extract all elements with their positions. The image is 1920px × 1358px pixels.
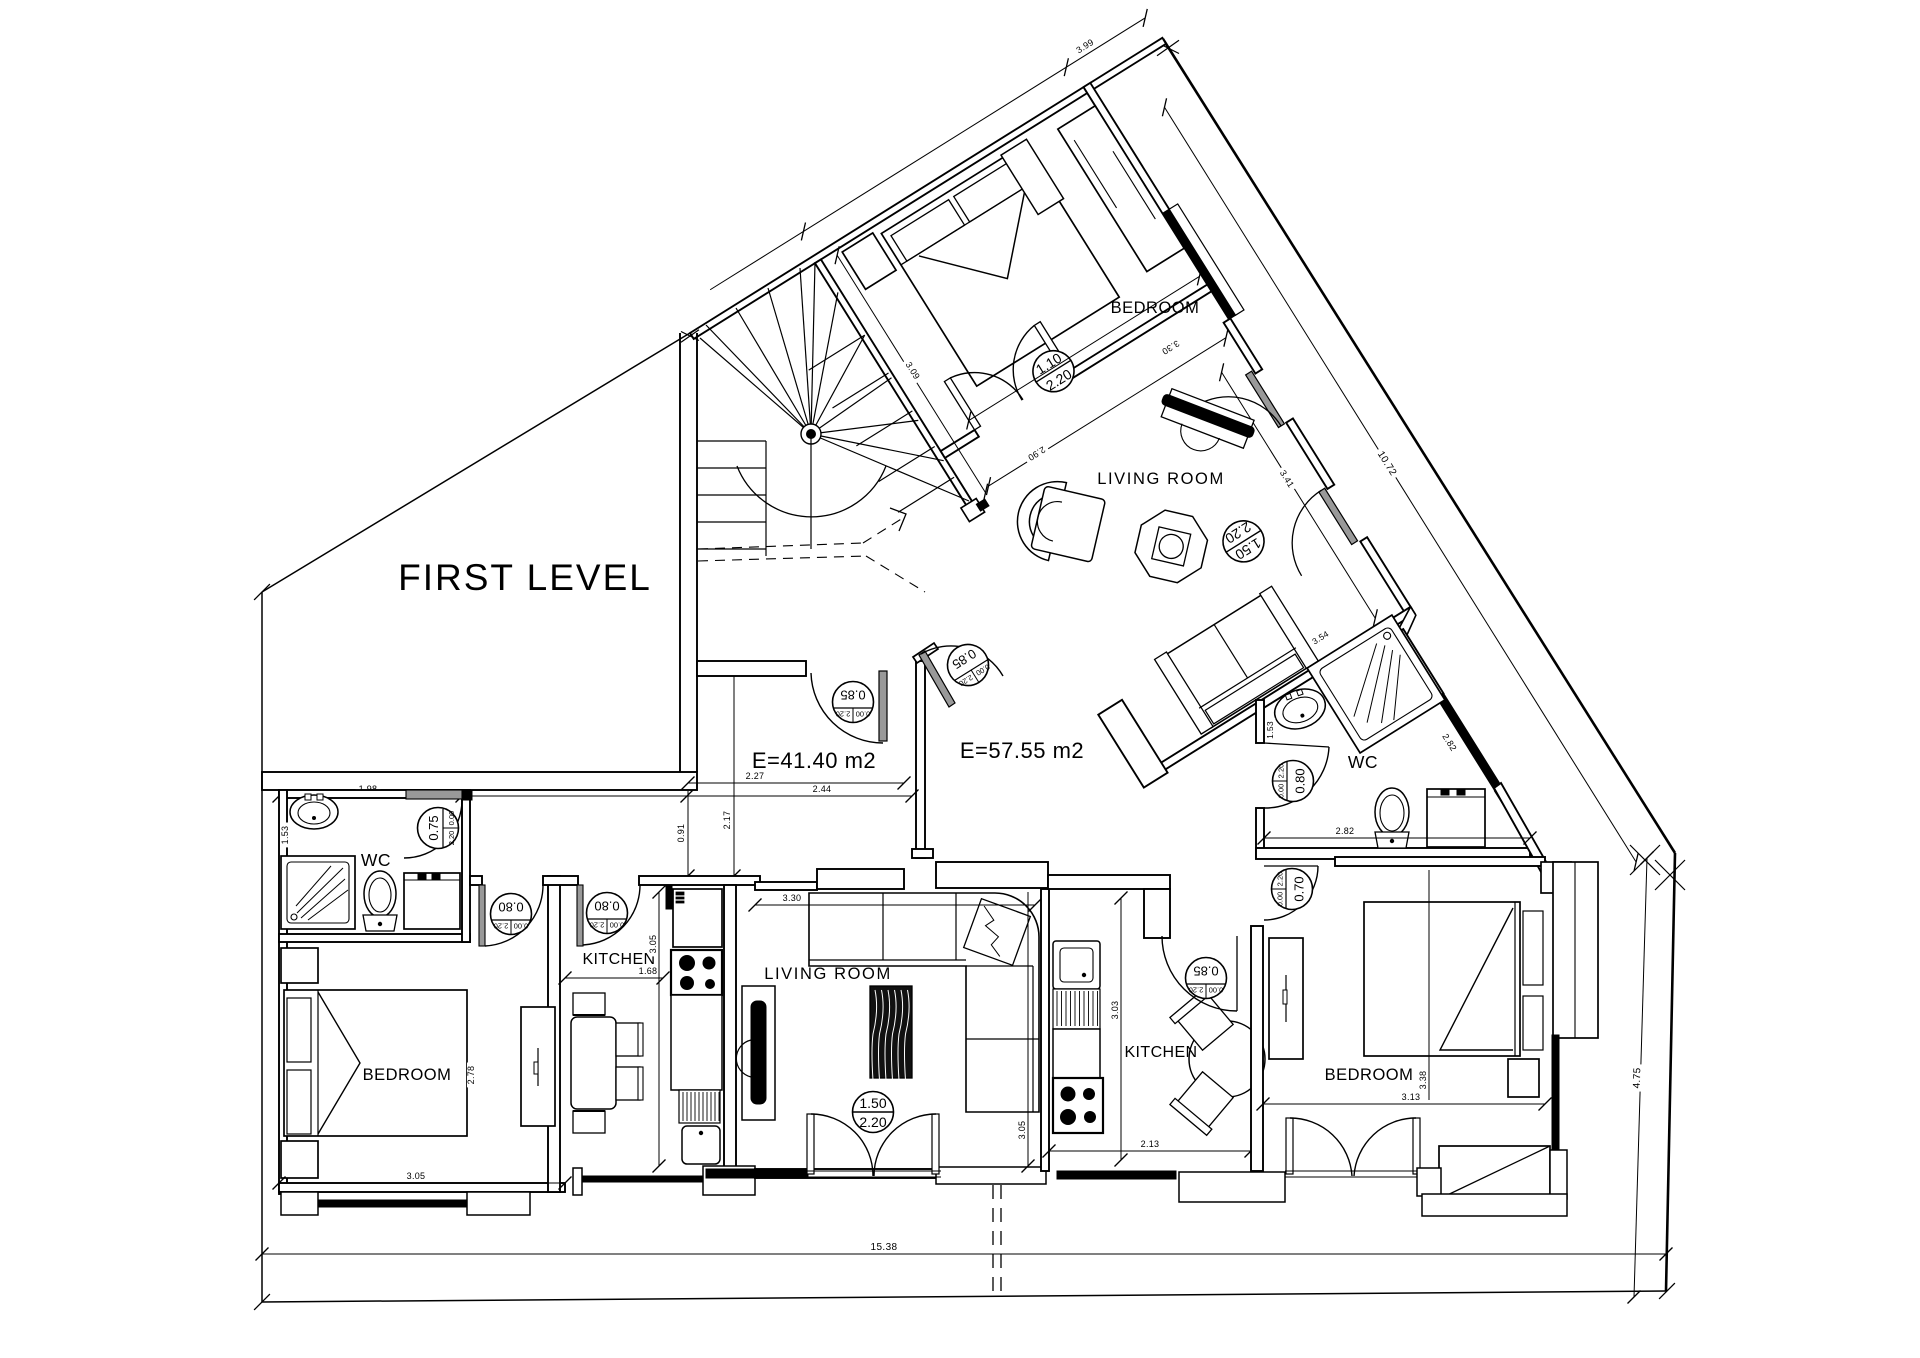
svg-text:E=57.55 m2: E=57.55 m2 [960, 738, 1084, 763]
svg-text:0.85: 0.85 [1193, 964, 1218, 979]
svg-text:2.20: 2.20 [1189, 986, 1204, 995]
svg-text:0.00: 0.00 [1276, 892, 1285, 907]
svg-text:2.20: 2.20 [1276, 872, 1285, 887]
svg-text:1.50: 1.50 [859, 1095, 886, 1111]
svg-text:BEDROOM: BEDROOM [1111, 299, 1200, 317]
svg-text:2.20: 2.20 [447, 831, 456, 846]
svg-text:0.00: 0.00 [1209, 986, 1224, 995]
svg-text:0.00: 0.00 [447, 811, 456, 826]
svg-text:1.53: 1.53 [1265, 721, 1275, 739]
svg-text:2.27: 2.27 [746, 771, 765, 781]
svg-text:3.03: 3.03 [1110, 1001, 1120, 1020]
svg-text:0.00: 0.00 [610, 921, 625, 930]
svg-text:1.68: 1.68 [639, 966, 658, 976]
svg-text:2.78: 2.78 [466, 1066, 476, 1085]
svg-text:2.82: 2.82 [1336, 826, 1355, 836]
svg-text:2.44: 2.44 [813, 784, 832, 794]
svg-text:3.05: 3.05 [648, 935, 658, 954]
svg-text:2.20: 2.20 [590, 921, 605, 930]
svg-text:0.85: 0.85 [840, 688, 865, 703]
svg-text:0.80: 0.80 [594, 899, 619, 914]
svg-text:0.91: 0.91 [676, 824, 686, 843]
svg-text:3.38: 3.38 [1418, 1071, 1428, 1090]
svg-text:0.80: 0.80 [1293, 768, 1308, 793]
svg-text:0.75: 0.75 [426, 815, 441, 840]
svg-text:0.70: 0.70 [1292, 876, 1307, 901]
svg-text:0.00: 0.00 [856, 710, 871, 719]
svg-text:3.05: 3.05 [407, 1171, 426, 1181]
svg-text:E=41.40 m2: E=41.40 m2 [752, 748, 876, 773]
svg-text:2.13: 2.13 [1141, 1139, 1160, 1149]
svg-text:FIRST LEVEL: FIRST LEVEL [398, 557, 652, 598]
svg-text:2.20: 2.20 [1277, 764, 1286, 779]
svg-text:2.20: 2.20 [494, 922, 509, 931]
svg-text:1.53: 1.53 [280, 826, 290, 845]
svg-text:BEDROOM: BEDROOM [1325, 1066, 1414, 1084]
svg-text:15.38: 15.38 [870, 1242, 897, 1253]
svg-text:KITCHEN: KITCHEN [1124, 1044, 1197, 1061]
svg-text:3.13: 3.13 [1402, 1092, 1421, 1102]
svg-text:2.20: 2.20 [836, 710, 851, 719]
svg-text:0.00: 0.00 [1277, 784, 1286, 799]
svg-text:BEDROOM: BEDROOM [363, 1066, 452, 1084]
svg-text:2.17: 2.17 [722, 811, 732, 830]
svg-text:WC: WC [361, 850, 391, 870]
svg-text:LIVING ROOM: LIVING ROOM [1097, 470, 1225, 488]
svg-text:LIVING ROOM: LIVING ROOM [764, 965, 892, 983]
svg-text:2.20: 2.20 [859, 1114, 886, 1130]
svg-text:WC: WC [1348, 752, 1378, 772]
svg-text:3.30: 3.30 [783, 893, 802, 903]
svg-text:3.05: 3.05 [1017, 1121, 1027, 1140]
svg-text:0.00: 0.00 [514, 922, 529, 931]
svg-text:0.80: 0.80 [498, 900, 523, 915]
svg-text:4.75: 4.75 [1632, 1067, 1644, 1088]
